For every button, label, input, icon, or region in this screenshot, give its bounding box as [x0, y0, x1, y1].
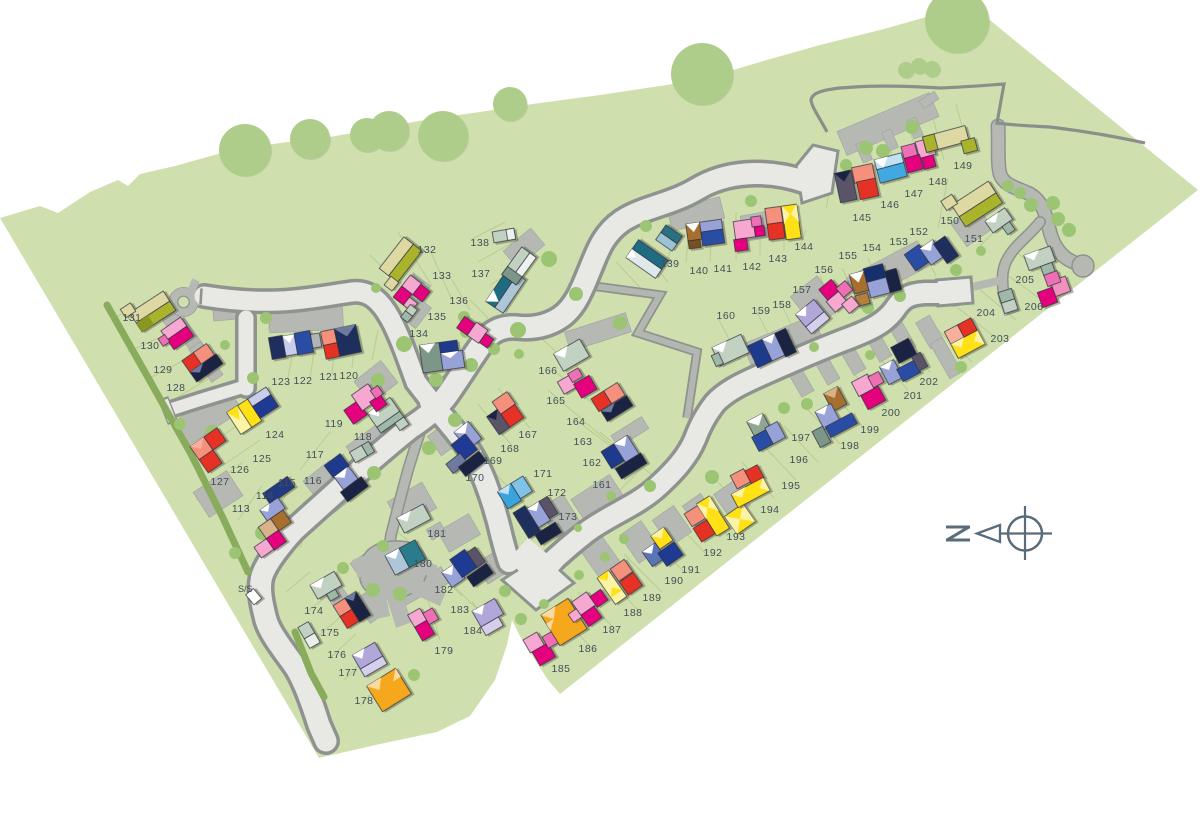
svg-text:122: 122: [293, 375, 312, 387]
svg-text:195: 195: [781, 480, 800, 492]
svg-text:141: 141: [713, 263, 732, 275]
svg-text:128: 128: [166, 382, 185, 394]
svg-text:193: 193: [726, 531, 745, 543]
svg-text:144: 144: [794, 241, 813, 253]
svg-text:113: 113: [232, 503, 250, 515]
svg-text:150: 150: [940, 215, 959, 227]
svg-text:154: 154: [862, 242, 881, 254]
svg-text:152: 152: [909, 226, 928, 238]
svg-text:123: 123: [271, 376, 290, 388]
svg-text:155: 155: [838, 250, 857, 262]
svg-text:160: 160: [716, 310, 735, 322]
svg-text:137: 137: [471, 268, 490, 280]
svg-text:205: 205: [1015, 274, 1034, 286]
svg-text:168: 168: [500, 443, 519, 455]
svg-text:159: 159: [751, 305, 770, 317]
svg-text:148: 148: [928, 176, 947, 188]
svg-text:127: 127: [210, 476, 229, 488]
svg-text:126: 126: [230, 464, 249, 476]
svg-text:120: 120: [339, 370, 358, 382]
svg-text:124: 124: [265, 429, 284, 441]
svg-text:174: 174: [304, 605, 323, 617]
svg-text:206: 206: [1024, 301, 1043, 313]
svg-text:169: 169: [483, 455, 502, 467]
svg-text:115: 115: [278, 477, 296, 489]
svg-text:200: 200: [881, 407, 900, 419]
svg-text:139: 139: [660, 258, 679, 270]
svg-text:146: 146: [880, 199, 899, 211]
svg-text:192: 192: [703, 547, 722, 559]
svg-text:202: 202: [919, 376, 938, 388]
svg-text:156: 156: [814, 264, 833, 276]
svg-text:196: 196: [789, 454, 808, 466]
svg-text:171: 171: [533, 468, 552, 480]
svg-text:165: 165: [546, 395, 565, 407]
svg-text:179: 179: [434, 645, 453, 657]
svg-text:129: 129: [153, 364, 172, 376]
svg-text:142: 142: [742, 261, 761, 273]
svg-text:140: 140: [689, 265, 708, 277]
svg-text:131: 131: [122, 312, 141, 324]
svg-text:183: 183: [450, 604, 469, 616]
svg-text:176: 176: [327, 649, 346, 661]
svg-text:138: 138: [470, 237, 489, 249]
svg-text:114: 114: [256, 490, 274, 502]
svg-text:177: 177: [338, 667, 357, 679]
svg-text:199: 199: [860, 424, 879, 436]
svg-text:178: 178: [354, 695, 373, 707]
svg-text:191: 191: [681, 564, 700, 576]
svg-text:185: 185: [551, 663, 570, 675]
svg-text:198: 198: [840, 440, 859, 452]
svg-text:164: 164: [566, 416, 585, 428]
svg-text:S/S: S/S: [238, 584, 253, 594]
svg-text:175: 175: [320, 627, 339, 639]
svg-text:197: 197: [791, 432, 810, 444]
svg-text:187: 187: [602, 624, 621, 636]
svg-text:151: 151: [964, 233, 983, 245]
svg-text:116: 116: [304, 475, 322, 487]
svg-text:130: 130: [140, 340, 159, 352]
svg-text:132: 132: [417, 244, 436, 256]
svg-text:184: 184: [463, 625, 482, 637]
svg-text:134: 134: [409, 328, 428, 340]
svg-text:119: 119: [325, 418, 343, 430]
svg-text:135: 135: [427, 311, 446, 323]
svg-text:189: 189: [642, 592, 661, 604]
svg-text:158: 158: [772, 299, 791, 311]
svg-text:163: 163: [573, 436, 592, 448]
svg-text:121: 121: [319, 371, 338, 383]
svg-text:153: 153: [889, 236, 908, 248]
svg-text:188: 188: [623, 607, 642, 619]
svg-text:173: 173: [558, 511, 577, 523]
svg-text:149: 149: [953, 160, 972, 172]
svg-text:136: 136: [449, 295, 468, 307]
svg-text:133: 133: [432, 270, 451, 282]
svg-text:143: 143: [768, 253, 787, 265]
svg-text:170: 170: [465, 472, 484, 484]
svg-text:186: 186: [578, 643, 597, 655]
svg-text:182: 182: [434, 584, 453, 596]
svg-text:167: 167: [518, 429, 537, 441]
svg-text:166: 166: [538, 365, 557, 377]
svg-text:204: 204: [976, 307, 995, 319]
svg-text:190: 190: [664, 575, 683, 587]
svg-text:145: 145: [852, 212, 871, 224]
svg-text:161: 161: [592, 479, 611, 491]
svg-text:157: 157: [792, 284, 811, 296]
svg-text:117: 117: [306, 449, 324, 461]
svg-text:118: 118: [354, 431, 372, 443]
svg-text:201: 201: [903, 390, 922, 402]
svg-text:172: 172: [547, 487, 566, 499]
svg-text:194: 194: [760, 504, 779, 516]
svg-text:147: 147: [904, 188, 923, 200]
svg-text:125: 125: [252, 453, 271, 465]
svg-text:162: 162: [582, 457, 601, 469]
svg-text:181: 181: [427, 528, 446, 540]
svg-text:180: 180: [413, 558, 432, 570]
svg-text:203: 203: [990, 333, 1009, 345]
